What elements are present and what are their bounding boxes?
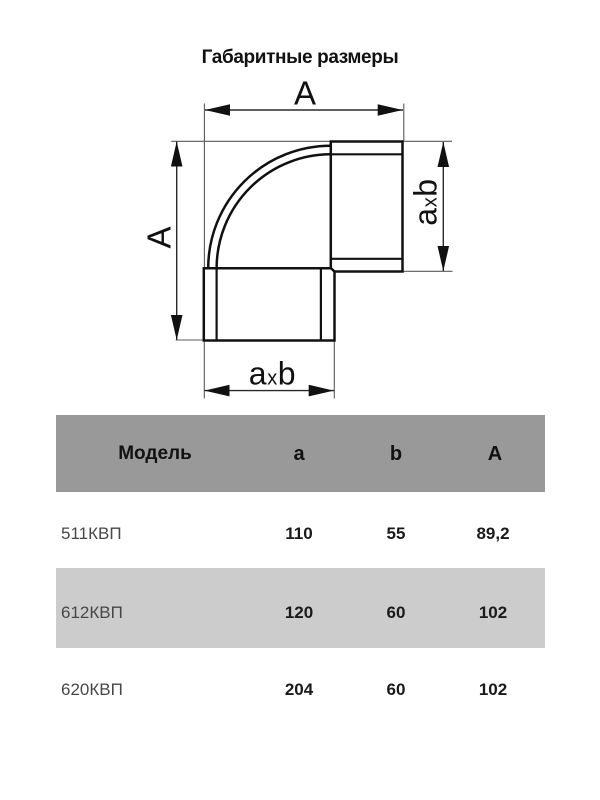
svg-text:axb: axb: [407, 178, 443, 225]
svg-text:axb: axb: [249, 356, 296, 392]
svg-text:A: A: [141, 226, 178, 248]
svg-text:A: A: [294, 75, 316, 112]
